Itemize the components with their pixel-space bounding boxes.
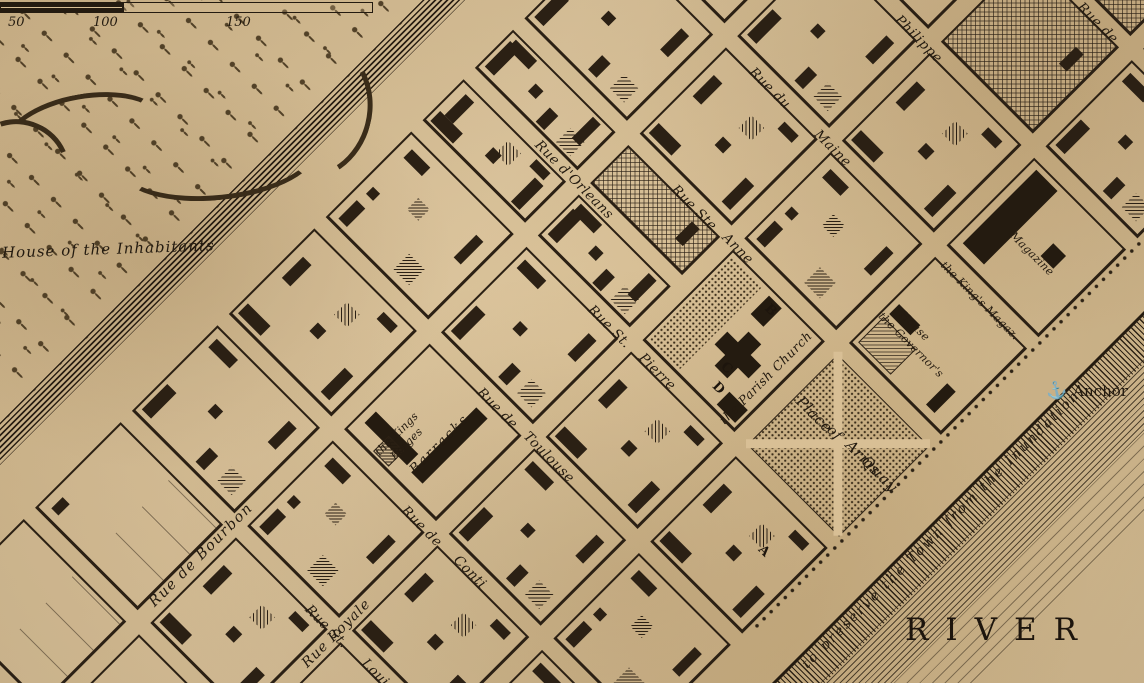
antique-city-plan-map: the Kings Forges Barracks the Parish Chu… <box>0 0 1144 683</box>
anchorage-label: ⚓Anchor <box>1046 381 1128 401</box>
place-of-arms-path <box>833 352 842 536</box>
scale-tick-50: 50 <box>8 15 25 30</box>
anchorage-text: Anchor <box>1073 382 1128 400</box>
scale-bar <box>0 2 373 13</box>
town-grid: the Kings Forges Barracks the Parish Chu… <box>0 0 1144 683</box>
anchor-icon: ⚓ <box>1044 379 1069 403</box>
scale-tick-100: 100 <box>93 15 118 30</box>
outbuilding <box>926 383 956 413</box>
river-label: RIVER <box>905 612 1094 648</box>
scale-tick-150: 150 <box>226 15 251 30</box>
